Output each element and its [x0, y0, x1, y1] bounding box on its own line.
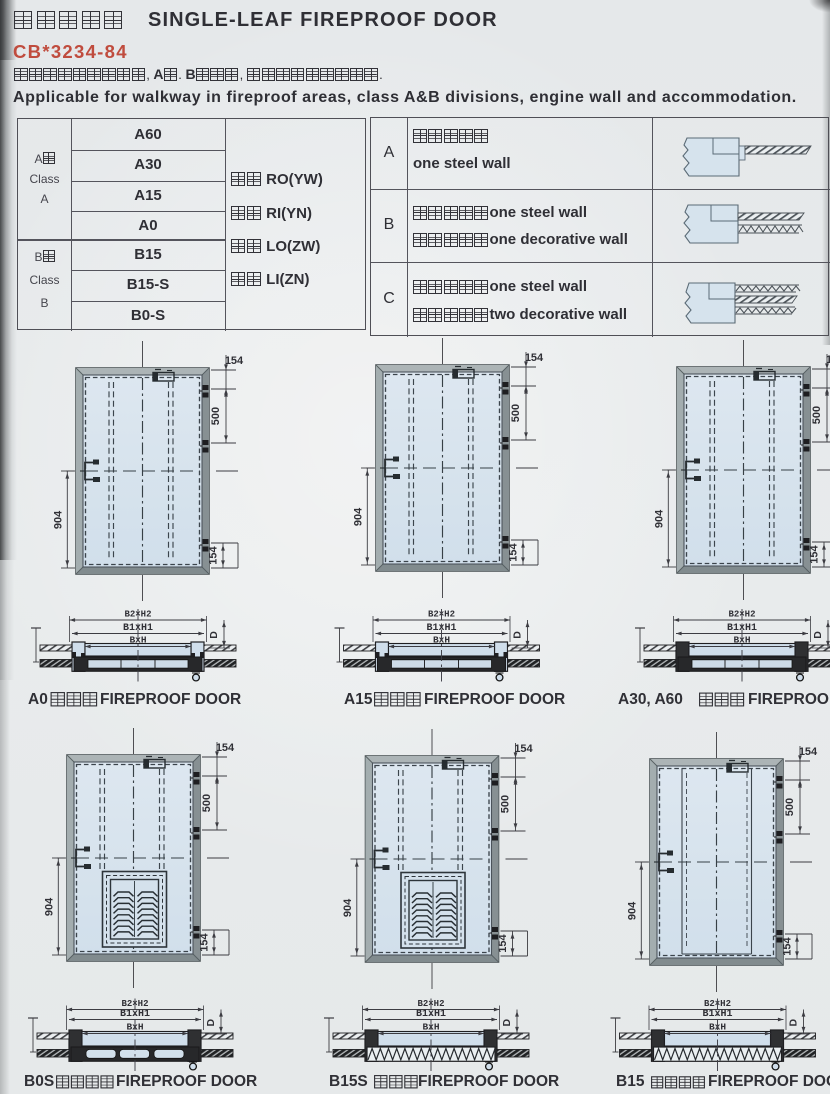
svg-text:154: 154 [497, 933, 509, 952]
svg-text:904: 904 [353, 507, 365, 526]
svg-text:D: D [501, 1019, 513, 1027]
svg-text:D: D [512, 631, 524, 639]
svg-text:A0: A0 [28, 691, 48, 708]
svg-text:A30, A60: A30, A60 [618, 691, 683, 708]
svg-text:154: 154 [799, 746, 818, 758]
svg-text:904: 904 [342, 898, 354, 917]
svg-text:500: 500 [510, 404, 522, 422]
svg-text:154: 154 [216, 742, 235, 754]
svg-text:FIREPROOF DOOR: FIREPROOF DOOR [708, 1073, 830, 1090]
svg-text:FIREPROOF DOOR: FIREPROOF DOOR [418, 1073, 559, 1090]
svg-text:154: 154 [208, 545, 220, 564]
svg-text:154: 154 [782, 936, 794, 955]
svg-text:154: 154 [809, 544, 821, 563]
svg-text:B15S: B15S [329, 1073, 368, 1090]
svg-text:154: 154 [525, 352, 544, 364]
svg-text:FIREPROOF DOOR: FIREPROOF DOOR [424, 691, 565, 708]
svg-text:154: 154 [826, 354, 830, 366]
svg-text:FIREPROOF DOOR: FIREPROOF DOOR [116, 1073, 257, 1090]
svg-text:154: 154 [508, 542, 520, 561]
svg-text:500: 500 [784, 798, 796, 816]
svg-text:500: 500 [811, 406, 823, 424]
svg-text:154: 154 [514, 743, 533, 755]
svg-text:D: D [812, 631, 824, 639]
svg-text:904: 904 [654, 509, 666, 528]
svg-text:B0S: B0S [24, 1073, 54, 1090]
svg-text:500: 500 [210, 407, 222, 425]
svg-text:FIREPROOF DOOR: FIREPROOF DOOR [100, 691, 241, 708]
svg-text:A15: A15 [344, 691, 373, 708]
svg-text:154: 154 [199, 932, 211, 951]
svg-text:B15: B15 [616, 1073, 645, 1090]
svg-text:D: D [208, 631, 220, 639]
svg-text:904: 904 [44, 897, 56, 916]
svg-text:FIREPROOF D: FIREPROOF D [748, 691, 830, 708]
svg-text:D: D [205, 1019, 217, 1027]
svg-text:500: 500 [201, 794, 213, 812]
svg-text:500: 500 [500, 795, 512, 813]
svg-text:154: 154 [225, 355, 244, 367]
svg-text:904: 904 [627, 901, 639, 920]
svg-text:904: 904 [53, 510, 65, 529]
svg-text:D: D [788, 1019, 800, 1027]
